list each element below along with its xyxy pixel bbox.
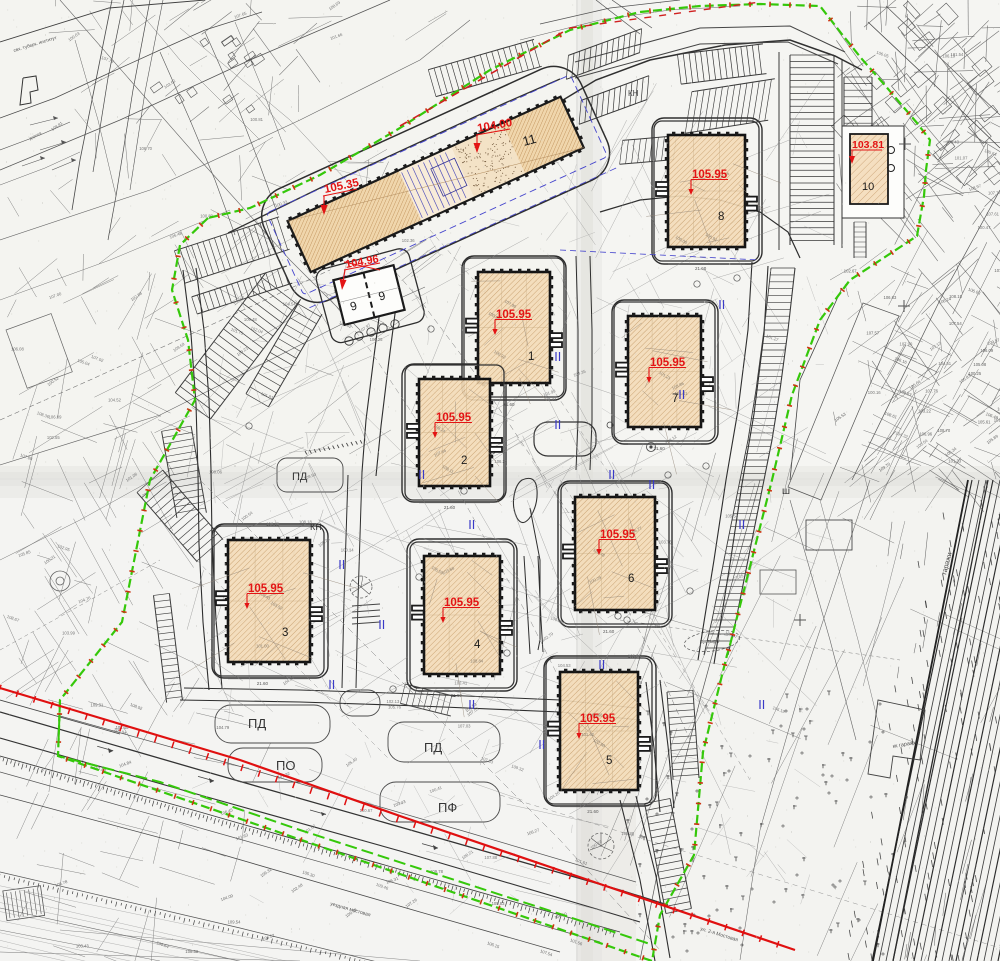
- svg-text:106.08: 106.08: [11, 347, 24, 352]
- svg-text:100.16: 100.16: [868, 390, 881, 395]
- svg-text:103.99: 103.99: [62, 630, 75, 635]
- svg-text:101.00: 101.00: [256, 643, 269, 648]
- svg-text:21.60: 21.60: [257, 681, 269, 686]
- svg-text:105.61: 105.61: [978, 419, 991, 424]
- svg-text:109.54: 109.54: [228, 920, 241, 925]
- svg-text:102.36: 102.36: [402, 238, 415, 243]
- svg-text:4: 4: [474, 639, 481, 651]
- svg-text:101.42: 101.42: [581, 732, 594, 737]
- svg-text:21.60: 21.60: [503, 402, 515, 407]
- svg-text:100.41: 100.41: [454, 680, 467, 685]
- svg-text:107.88: 107.88: [484, 855, 497, 860]
- svg-text:106.09: 106.09: [980, 348, 993, 353]
- svg-text:108.18: 108.18: [299, 520, 312, 525]
- svg-text:106.26: 106.26: [494, 459, 507, 464]
- svg-text:100.81: 100.81: [250, 117, 263, 122]
- svg-text:105.08: 105.08: [973, 362, 986, 367]
- svg-text:102.55: 102.55: [47, 435, 60, 440]
- svg-text:101.07: 101.07: [955, 155, 968, 160]
- svg-text:109.31: 109.31: [91, 703, 104, 708]
- svg-text:101.54: 101.54: [951, 52, 964, 57]
- svg-text:107.44: 107.44: [994, 268, 1000, 273]
- svg-text:ПО: ПО: [276, 758, 295, 773]
- svg-text:104.53: 104.53: [558, 663, 571, 668]
- svg-text:107.90: 107.90: [900, 342, 913, 347]
- svg-text:103.76: 103.76: [659, 540, 672, 545]
- svg-text:108.15: 108.15: [949, 294, 962, 299]
- svg-text:102.13: 102.13: [387, 699, 400, 704]
- svg-text:пустырь: пустырь: [700, 639, 719, 645]
- svg-text:108.88: 108.88: [621, 831, 634, 836]
- svg-text:100.14: 100.14: [341, 547, 354, 552]
- svg-text:21.60: 21.60: [654, 446, 666, 451]
- svg-text:106.70: 106.70: [139, 146, 152, 151]
- svg-text:106.09: 106.09: [49, 415, 62, 420]
- svg-text:107.57: 107.57: [866, 330, 879, 335]
- svg-text:КН: КН: [628, 89, 639, 98]
- svg-text:21.60: 21.60: [587, 809, 599, 814]
- svg-text:100.25: 100.25: [968, 371, 981, 376]
- svg-text:21.60: 21.60: [603, 629, 615, 634]
- svg-text:ш: ш: [782, 486, 790, 497]
- svg-text:104.79: 104.79: [216, 725, 229, 730]
- svg-text:105.76: 105.76: [388, 704, 401, 709]
- svg-text:107.76: 107.76: [925, 389, 938, 394]
- svg-text:101.19: 101.19: [994, 418, 1000, 423]
- svg-text:107.61: 107.61: [986, 212, 999, 217]
- svg-text:ПД: ПД: [248, 716, 266, 731]
- svg-text:108.70: 108.70: [937, 428, 950, 433]
- svg-text:2: 2: [461, 455, 467, 467]
- svg-text:108.84: 108.84: [470, 658, 483, 663]
- svg-text:107.03: 107.03: [458, 724, 471, 729]
- svg-text:8: 8: [718, 211, 724, 223]
- svg-text:103.22: 103.22: [918, 409, 931, 414]
- svg-text:21.60: 21.60: [444, 505, 456, 510]
- svg-text:103.81: 103.81: [852, 139, 884, 151]
- svg-text:106.83: 106.83: [884, 295, 897, 300]
- svg-text:105.43: 105.43: [946, 139, 959, 144]
- svg-text:10: 10: [862, 181, 874, 193]
- svg-text:107.54: 107.54: [949, 321, 962, 326]
- svg-text:100.06: 100.06: [209, 470, 222, 475]
- svg-text:102.67: 102.67: [844, 269, 857, 274]
- svg-text:106.96: 106.96: [919, 431, 932, 436]
- svg-text:1: 1: [528, 351, 534, 363]
- svg-text:3: 3: [282, 627, 288, 639]
- svg-text:21.60: 21.60: [695, 266, 707, 271]
- svg-text:105.53: 105.53: [725, 514, 738, 519]
- svg-text:104.52: 104.52: [108, 398, 121, 403]
- svg-text:7: 7: [672, 393, 678, 405]
- svg-text:5: 5: [606, 755, 612, 767]
- svg-text:6: 6: [628, 573, 634, 585]
